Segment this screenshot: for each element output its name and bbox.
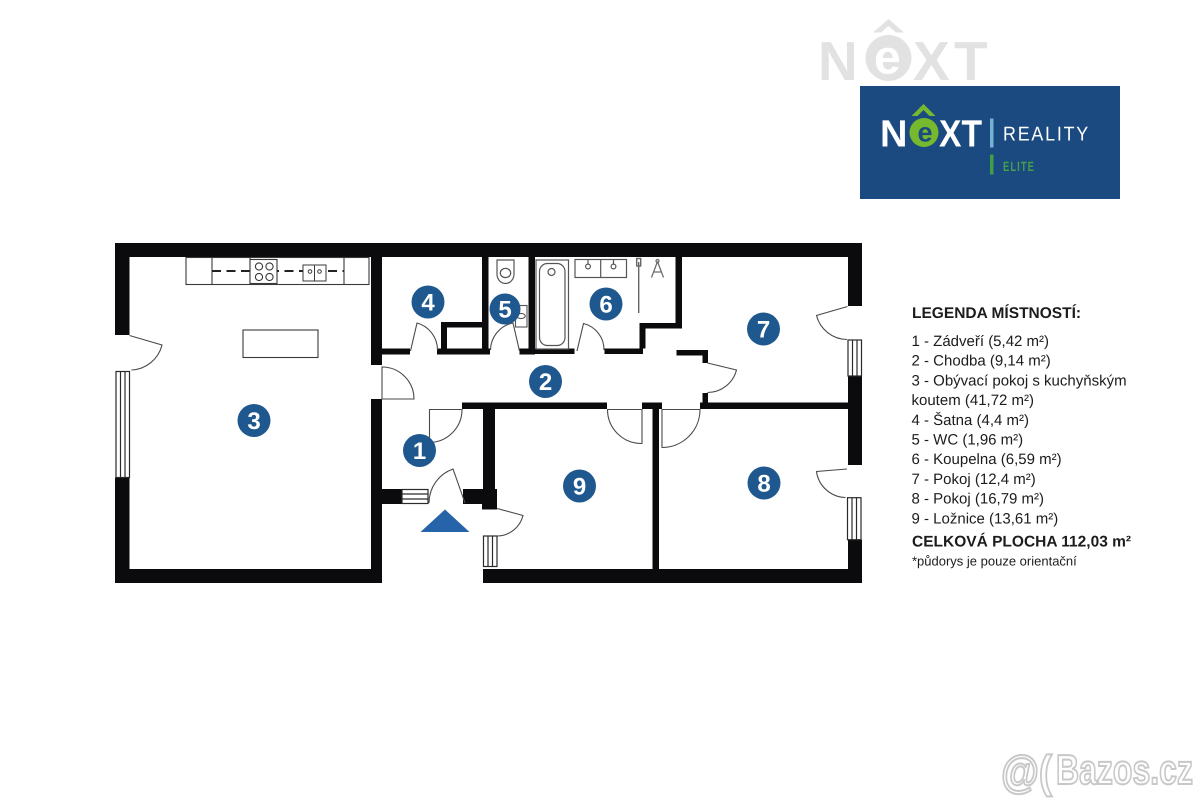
svg-text:N: N xyxy=(880,114,907,156)
svg-text:CELKOVÁ PLOCHA 112,03 m²: CELKOVÁ PLOCHA 112,03 m² xyxy=(912,533,1131,551)
svg-text:7 - Pokoj (12,4 m²): 7 - Pokoj (12,4 m²) xyxy=(912,471,1036,488)
svg-text:5: 5 xyxy=(498,297,511,324)
svg-text:4 - Šatna (4,4 m²): 4 - Šatna (4,4 m²) xyxy=(912,411,1030,429)
svg-text:*půdorys je pouze orientační: *půdorys je pouze orientační xyxy=(912,554,1077,569)
svg-text:6: 6 xyxy=(599,292,612,319)
svg-text:LEGENDA MÍSTNOSTÍ:: LEGENDA MÍSTNOSTÍ: xyxy=(912,304,1081,322)
svg-text:2: 2 xyxy=(539,369,552,396)
svg-text:9 - Ložnice (13,61 m²): 9 - Ložnice (13,61 m²) xyxy=(912,510,1059,527)
svg-text:N: N xyxy=(818,30,858,92)
svg-text:8: 8 xyxy=(757,471,770,498)
svg-text:3 - Obývací pokoj s kuchyňským: 3 - Obývací pokoj s kuchyňským xyxy=(912,372,1127,389)
svg-text:1 - Zádveří (5,42 m²): 1 - Zádveří (5,42 m²) xyxy=(912,333,1050,350)
svg-text:6 - Koupelna (6,59 m²): 6 - Koupelna (6,59 m²) xyxy=(912,451,1062,468)
svg-text:8 - Pokoj (16,79 m²): 8 - Pokoj (16,79 m²) xyxy=(912,491,1045,508)
svg-text:1: 1 xyxy=(413,438,426,465)
svg-text:T: T xyxy=(954,30,988,92)
svg-text:e: e xyxy=(918,118,933,148)
svg-text:@(: @( xyxy=(1001,746,1052,797)
svg-text:2 - Chodba (9,14 m²): 2 - Chodba (9,14 m²) xyxy=(912,353,1051,370)
svg-text:REALITY: REALITY xyxy=(1003,124,1090,146)
svg-text:5 - WC (1,96 m²): 5 - WC (1,96 m²) xyxy=(912,432,1024,449)
svg-text:3: 3 xyxy=(247,408,260,435)
svg-text:koutem (41,72 m²): koutem (41,72 m²) xyxy=(912,392,1035,409)
svg-text:e: e xyxy=(874,32,901,85)
svg-text:4: 4 xyxy=(421,290,435,317)
svg-text:Bazos.cz: Bazos.cz xyxy=(1056,746,1193,793)
svg-text:7: 7 xyxy=(757,317,770,344)
svg-text:XT: XT xyxy=(939,114,982,156)
svg-text:X: X xyxy=(913,30,950,92)
svg-text:9: 9 xyxy=(573,474,586,501)
svg-text:ELITE: ELITE xyxy=(1003,159,1035,174)
